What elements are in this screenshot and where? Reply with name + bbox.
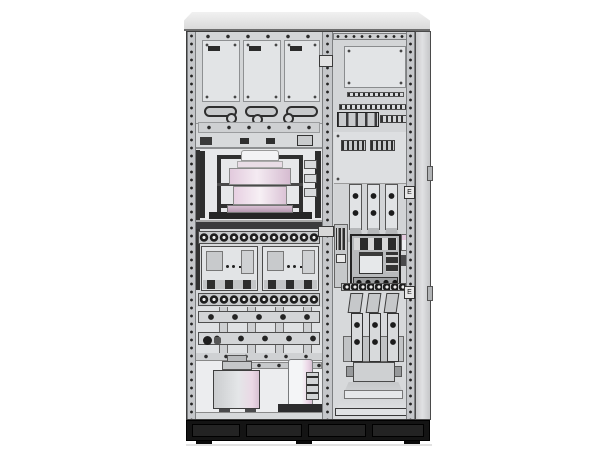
transformer-neck	[237, 161, 283, 168]
nut-fastener	[203, 336, 212, 345]
vertical-busbar-upper	[385, 184, 398, 230]
transformer-band	[229, 168, 291, 185]
transformer-box	[213, 370, 260, 409]
pedestal-box	[353, 362, 395, 382]
vent-panel	[344, 46, 406, 88]
door-bottom-strip	[198, 122, 320, 133]
left-frame-rail	[187, 32, 196, 419]
earth-label-plate: E	[404, 286, 415, 299]
lower-terminal-strip	[341, 283, 406, 291]
louver-strip	[339, 104, 411, 110]
right-frame-rail	[406, 32, 415, 419]
earth-label-plate: E	[404, 186, 415, 199]
transformer-skirt	[227, 205, 293, 213]
acb-top-slots	[354, 238, 397, 250]
breaker-side-block	[241, 250, 254, 274]
din-terminal-blocks	[337, 112, 379, 127]
breaker-terminal-strip	[203, 280, 256, 289]
pedestal-band	[344, 390, 403, 399]
breaker-dot	[287, 265, 290, 268]
pedestal-base-plate	[335, 408, 412, 416]
bushing	[304, 174, 317, 183]
cabinet-render-scene: E E	[0, 0, 600, 450]
hardware-block	[266, 138, 275, 144]
bushing	[304, 160, 317, 169]
acb-face-block	[359, 252, 383, 274]
mccb-breaker	[262, 246, 319, 291]
bay-floor	[196, 412, 322, 419]
breaker-dot	[293, 265, 296, 268]
vertical-busbar-lower	[351, 313, 363, 362]
breaker-dot	[226, 265, 229, 268]
breaker-vent	[267, 251, 284, 271]
breaker-terminal-strip	[264, 280, 317, 289]
breaker-dot	[232, 265, 235, 268]
cabinet-top-cap	[184, 12, 430, 31]
breaker-vent	[206, 251, 223, 271]
vertical-busbar-lower	[387, 313, 399, 362]
hinge-tab	[427, 166, 433, 181]
terminal-group	[341, 140, 366, 151]
aux-terminal-slots	[336, 228, 346, 250]
acb-side-block	[386, 252, 398, 272]
transformer-drum	[233, 186, 287, 205]
hardware-block	[200, 137, 212, 145]
plinth-segment	[308, 424, 366, 437]
frame-post	[200, 151, 205, 218]
capacitor-base-plate	[278, 404, 322, 412]
mccb-breaker	[201, 246, 258, 291]
breaker-side-block	[302, 250, 315, 274]
bushing	[304, 188, 317, 197]
aux-terminal-block	[336, 254, 346, 263]
plinth-segment	[192, 424, 240, 437]
hardware-box	[297, 135, 313, 146]
transformer-cap	[241, 150, 279, 161]
door-latch	[318, 226, 334, 237]
plinth-segment	[372, 424, 424, 437]
door-latch	[319, 55, 333, 67]
terminal-row-upper	[198, 231, 320, 244]
shelf-bar	[196, 220, 322, 229]
vertical-busbar-upper	[367, 184, 380, 230]
pedestal-lug	[394, 366, 402, 377]
louver-strip	[347, 92, 404, 97]
horizontal-busbar	[198, 311, 320, 323]
frame-base-bar	[209, 212, 312, 219]
vertical-busbar-upper	[349, 184, 362, 230]
floor-shadow	[186, 444, 432, 446]
bolt-fastener	[214, 337, 221, 344]
hardware-block	[240, 138, 249, 144]
transformer-box-cap	[222, 361, 252, 370]
door-label-mark	[290, 46, 302, 51]
hinge-tab	[427, 286, 433, 301]
mounting-bracket	[306, 372, 319, 400]
right-side-wall	[415, 31, 431, 420]
door-label-mark	[208, 46, 220, 51]
terminal-row-lower	[198, 293, 320, 306]
door-top-screw-row	[198, 34, 320, 39]
plinth-segment	[246, 424, 302, 437]
terminal-group	[370, 140, 395, 151]
vertical-busbar-lower	[369, 313, 381, 362]
top-perforated-strip	[333, 33, 413, 40]
door-label-mark	[249, 46, 261, 51]
